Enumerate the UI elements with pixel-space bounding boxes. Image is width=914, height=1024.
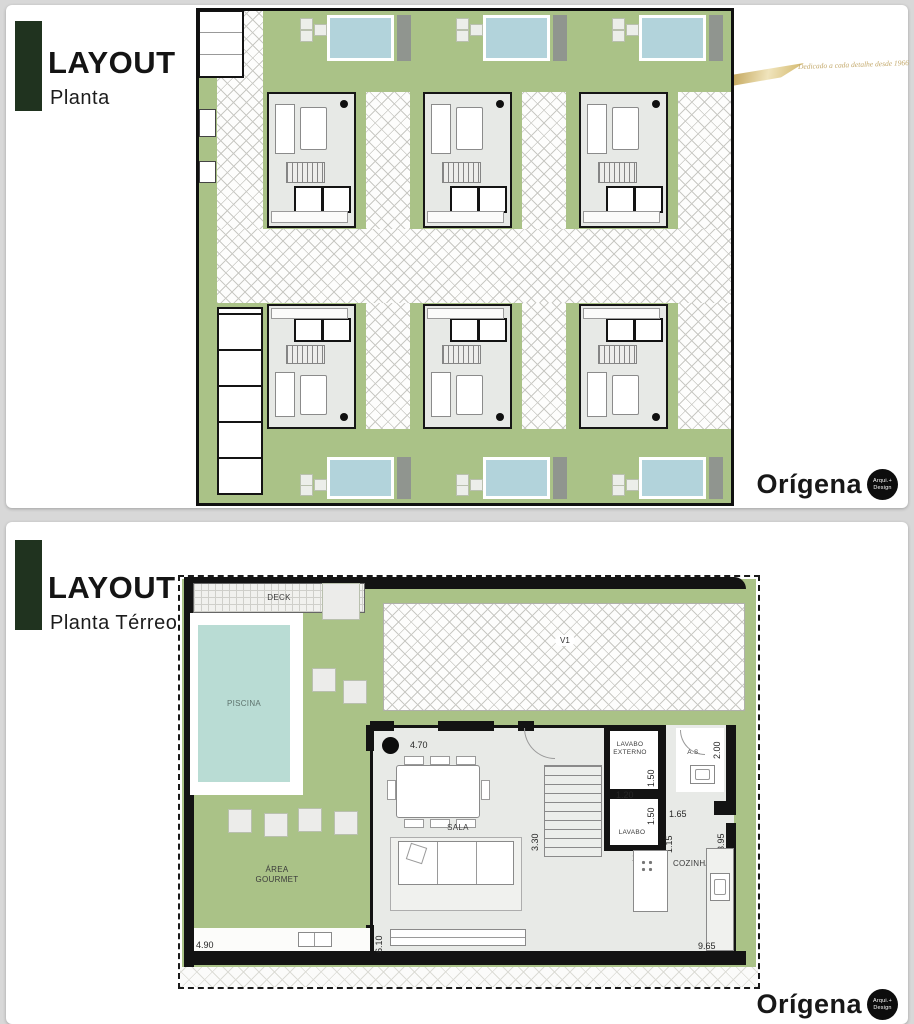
pool-deck [553, 457, 567, 499]
brand-name: Orígena [756, 469, 862, 500]
deck-label: DECK [267, 593, 290, 603]
villa-unit-2 [419, 11, 575, 229]
column-dot [382, 737, 399, 754]
utility-box [199, 161, 216, 183]
bedroom-annex [217, 307, 263, 495]
dim-stairs-depth: 3.30 [530, 817, 540, 851]
panel-planta: LAYOUT Planta Dedicado a cada detalhe de… [6, 5, 908, 508]
brand-logo: Orígena Arqui.+ Design [756, 469, 898, 500]
page-title: LAYOUT [48, 570, 176, 606]
lavabo-externo-label: LAVABO EXTERNO [608, 741, 652, 757]
villa-unit-3 [575, 11, 731, 229]
stepping-stone [312, 668, 336, 692]
driveway [678, 92, 731, 229]
dining-table [396, 765, 480, 818]
gate [298, 932, 332, 947]
dim-sala-depth: 6.10 [374, 929, 384, 953]
dim-cozinha-width: 9.65 [698, 941, 716, 951]
ground-floor-plan: DECK PISCINA ÁREA GOURMET V1 4.70 [178, 575, 760, 989]
brand-logo: Orígena Arqui.+ Design [756, 989, 898, 1020]
pool: PISCINA [198, 625, 290, 782]
patio-slab [322, 583, 360, 620]
pool [639, 457, 706, 499]
pool [483, 457, 550, 499]
dim-lavabo-width: 1.20 [616, 790, 634, 800]
pool-deck [553, 15, 567, 61]
lavabo-label: LAVABO [610, 829, 654, 837]
piscina-label: PISCINA [227, 699, 261, 709]
house-footprint [267, 304, 356, 429]
tv-console [390, 929, 526, 946]
stepping-stone [264, 813, 288, 837]
column-dot [340, 100, 348, 108]
bathrooms [294, 186, 351, 212]
utility-box [199, 109, 216, 137]
house-footprint [267, 92, 356, 228]
stepping-stone [334, 811, 358, 835]
panel-planta-terreo: LAYOUT Planta Térreo DECK PISCINA ÁREA G… [6, 522, 908, 1024]
sala-label: SALA [438, 823, 478, 833]
villa-unit-6 [575, 303, 731, 503]
villa-unit-4 [263, 303, 419, 503]
stairs [544, 765, 602, 857]
dim-as: 2.00 [712, 733, 722, 759]
stepping-stone [228, 809, 252, 833]
site-plan [196, 8, 734, 506]
stairs [286, 162, 325, 183]
pool-deck [397, 457, 411, 499]
house-footprint [423, 304, 512, 429]
brand-badge-icon: Arqui.+ Design [867, 989, 898, 1020]
driveway [522, 92, 566, 229]
walkway [194, 928, 370, 951]
house-footprint [579, 92, 668, 228]
accent-bar [15, 540, 42, 630]
kitchen-counter [271, 211, 347, 223]
stepping-stone [343, 680, 367, 704]
pool [483, 15, 550, 61]
brand-tagline: Dedicado a cada detalhe desde 1966 [798, 59, 914, 71]
sofa [275, 104, 295, 154]
pool [327, 15, 394, 61]
pool-deck [709, 457, 723, 499]
terrace-v1 [383, 603, 745, 711]
pool [327, 457, 394, 499]
driveway [522, 303, 566, 429]
dim-sala-width: 4.70 [410, 740, 428, 750]
driveway [678, 303, 731, 429]
page-subtitle: Planta Térreo [50, 612, 177, 635]
dim-lavabo-depth: 1.50 [646, 801, 656, 825]
pool-surround: PISCINA [190, 613, 303, 795]
stepping-stone [298, 808, 322, 832]
house-footprint [423, 92, 512, 228]
paved-road [217, 229, 731, 303]
accent-bar [15, 21, 42, 111]
house-footprint [579, 304, 668, 429]
dim-cozinha-depth: 3.95 [716, 821, 726, 851]
pool [639, 15, 706, 61]
driveway [366, 303, 410, 429]
pool-deck [709, 15, 723, 61]
dim-gourmet: 4.90 [196, 940, 214, 950]
brand-name: Orígena [756, 989, 862, 1020]
service-rooms [198, 10, 244, 78]
driveway [366, 92, 410, 229]
wall-bottom [184, 951, 746, 965]
kitchen-sink [710, 873, 730, 901]
brand-badge-icon: Arqui.+ Design [867, 469, 898, 500]
page-title: LAYOUT [48, 45, 176, 81]
pool-deck [397, 15, 411, 61]
v1-label: V1 [555, 635, 575, 646]
dim-hall: 1.65 [669, 809, 687, 819]
gold-ribbon-icon [722, 63, 804, 93]
villa-unit-1 [263, 11, 419, 229]
villa-unit-5 [419, 303, 575, 503]
dining-table [300, 107, 327, 150]
dim-lavext: 1.50 [646, 763, 656, 787]
laundry-sink [690, 765, 715, 784]
page-subtitle: Planta [50, 87, 110, 110]
sidewalk [180, 967, 758, 987]
area-gourmet-label: ÁREA GOURMET [237, 865, 317, 885]
stove-icon [640, 859, 654, 873]
